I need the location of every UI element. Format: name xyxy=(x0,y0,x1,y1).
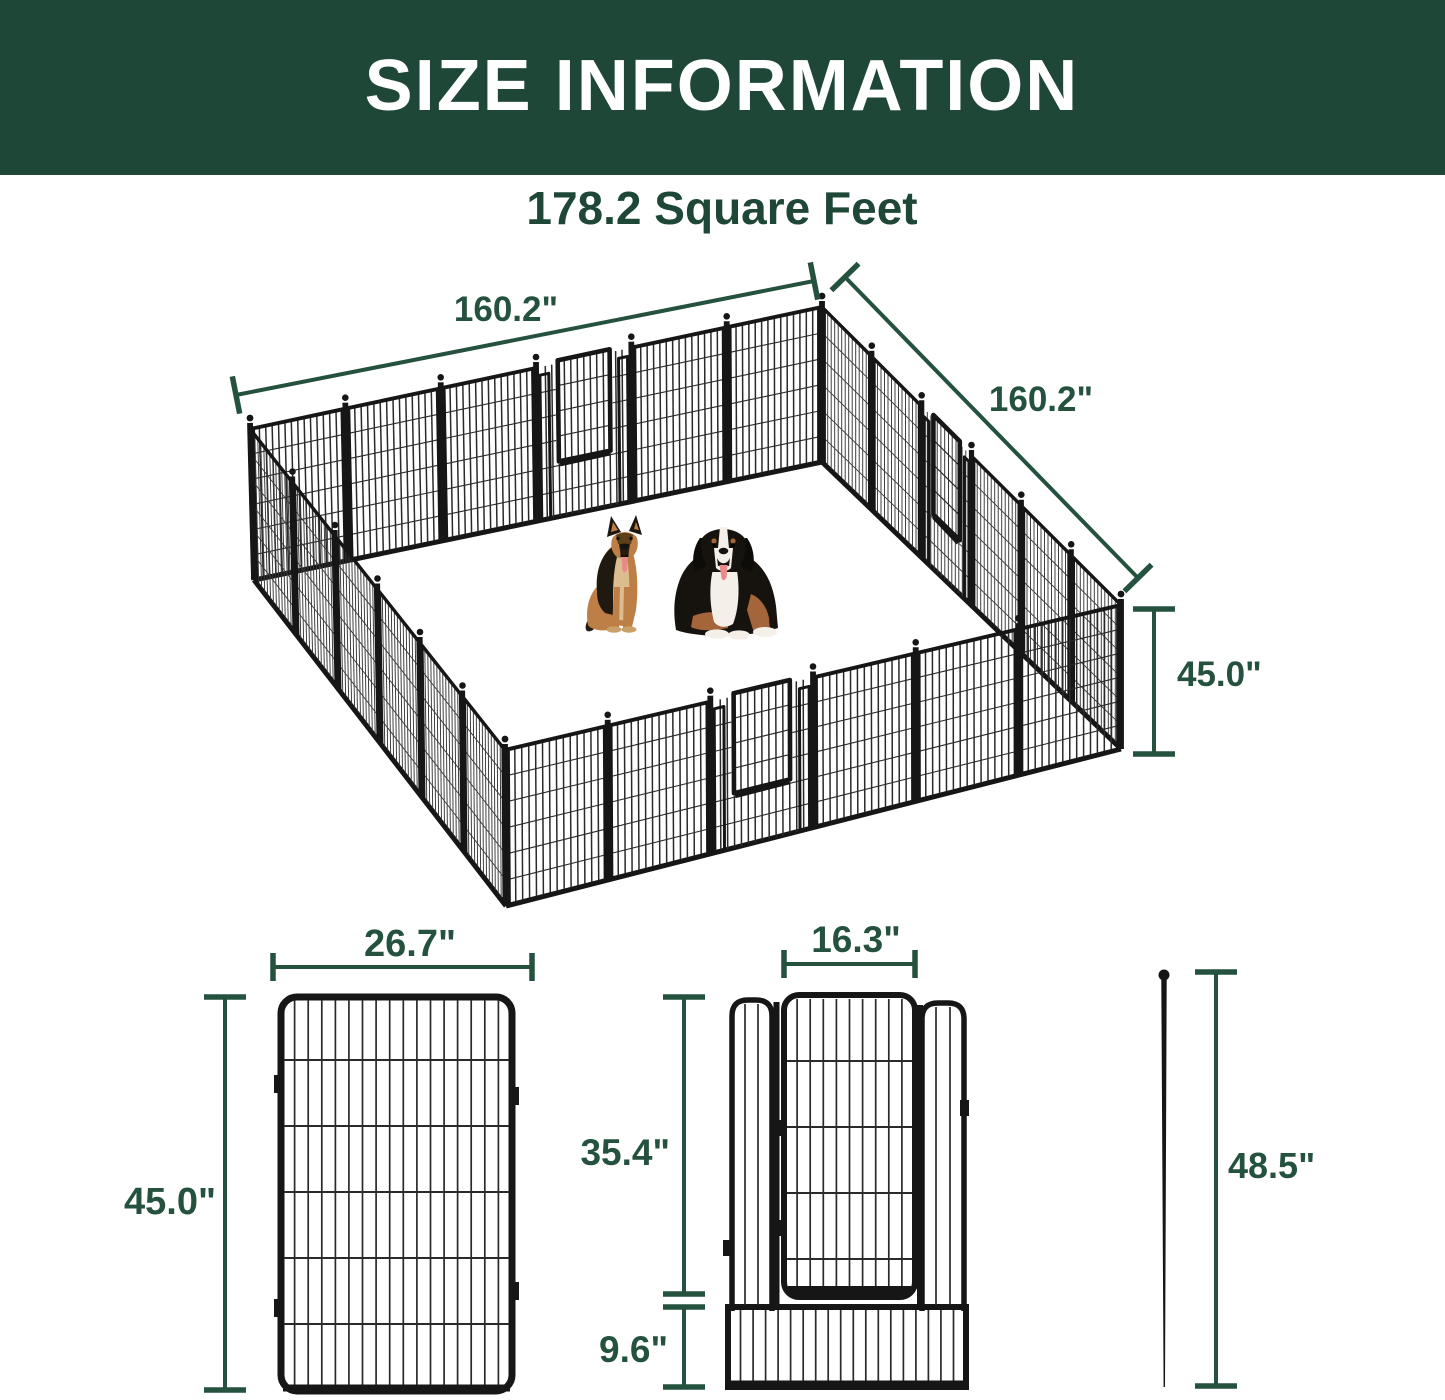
svg-text:26.7": 26.7" xyxy=(364,923,456,965)
svg-text:160.2": 160.2" xyxy=(989,380,1093,419)
svg-text:48.5": 48.5" xyxy=(1228,1145,1315,1186)
svg-text:45.0": 45.0" xyxy=(1177,655,1262,694)
svg-text:SIZE INFORMATION: SIZE INFORMATION xyxy=(365,46,1080,126)
svg-text:178.2 Square Feet: 178.2 Square Feet xyxy=(526,182,917,234)
svg-text:9.6": 9.6" xyxy=(599,1329,668,1370)
svg-text:160.2": 160.2" xyxy=(454,290,558,329)
svg-text:45.0": 45.0" xyxy=(124,1181,216,1223)
svg-text:16.3": 16.3" xyxy=(811,919,901,960)
svg-text:35.4": 35.4" xyxy=(580,1132,670,1173)
